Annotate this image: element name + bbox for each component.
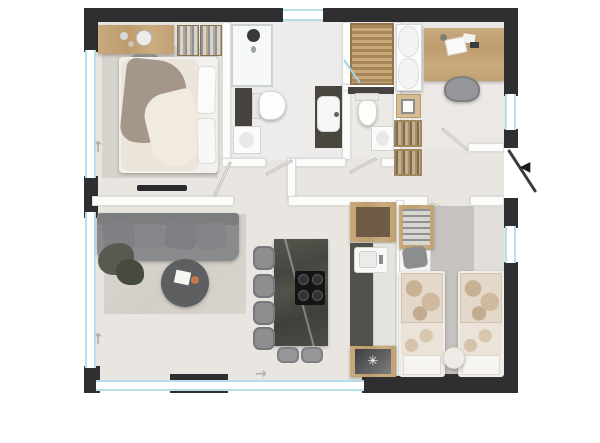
right-wall-upper-mid [504,129,518,150]
bed2b-pillow [460,273,502,323]
bedroom2-chair [402,245,429,269]
direction-arrow-up-1: ↑ [90,138,106,156]
burner-1 [298,274,309,285]
top-wall-left [84,8,283,22]
desk-plant [440,34,447,41]
wall-bed1-living [92,196,234,206]
master-bed-pillow-2 [196,118,217,165]
kitchen-sink-bowl [359,251,377,268]
bedroom1-tv [137,185,187,191]
coffee-table-paper [174,270,191,286]
window-top [283,9,323,21]
kitchen-cabinet-inner [356,207,390,237]
dresser-mirror [136,30,152,46]
wall-office-south [468,143,504,152]
right-wall-top [504,8,518,96]
floor-plan-canvas: ◀✳↑↑→ [0,0,600,443]
right-wall-lower-mid [504,196,518,228]
burner-4 [312,290,323,301]
wardrobe2-rail [403,209,430,245]
window-right-lower [505,226,516,263]
bed2a-duvet [401,323,443,355]
bedroom2-pouf [443,347,465,369]
bed2b-duvet [460,323,502,355]
dresser-item-2 [128,41,134,47]
desk-keyboard [470,42,479,48]
wall-bed1-bath [222,22,231,160]
direction-arrow-up-2: ↑ [90,330,106,348]
entrance-arrow-icon: ◀ [517,158,533,176]
island-chair-2 [253,274,275,298]
office-cabinet-door-1 [398,26,419,57]
bed2b-bench [462,355,500,375]
window-left-upper [85,50,96,178]
island-chair-3 [253,301,275,325]
direction-arrow-right: → [252,366,270,382]
master-bed-pillow-1 [196,66,217,115]
island-chair-4 [253,327,275,350]
sofa-cushion-4 [195,222,227,250]
art-frame [401,99,415,114]
left-wall-top [84,8,98,52]
washbasin1-bowl [239,132,254,148]
office-shelf-1 [394,120,422,147]
wardrobe-section-1 [177,25,199,56]
window-right-upper [505,94,516,130]
office-cabinet-door-2 [398,58,419,89]
kitchen-faucet [379,255,383,264]
shower-head-icon [247,29,260,42]
bed2a-bench [403,355,441,375]
coffee-table-cup [191,276,199,284]
burner-2 [312,274,323,285]
island-chair-1 [253,246,275,270]
toilet2-bowl [358,100,377,126]
window-bottom [96,380,364,391]
island-stool-1 [277,347,299,363]
island-stool-2 [301,347,323,363]
dresser-item-1 [120,32,128,40]
plant-blob-2 [116,259,144,285]
bath-vanity-faucet [334,112,339,117]
office-shelf-2 [394,149,422,176]
bed2a-pillow [401,273,443,323]
sofa-cushion-2 [136,224,164,248]
toilet1-bowl [259,91,286,120]
top-wall-right [323,8,518,22]
washbasin2-bowl [376,131,389,146]
wall-bed2-top-right [470,196,504,206]
sofa-cushion-3 [163,219,198,251]
office-chair [444,76,480,102]
wardrobe-section-2 [200,25,222,56]
freezer-icon: ✳ [363,351,383,371]
wall-bath-hall-b [294,158,346,167]
shower-knob [251,46,256,53]
burner-3 [298,290,309,301]
